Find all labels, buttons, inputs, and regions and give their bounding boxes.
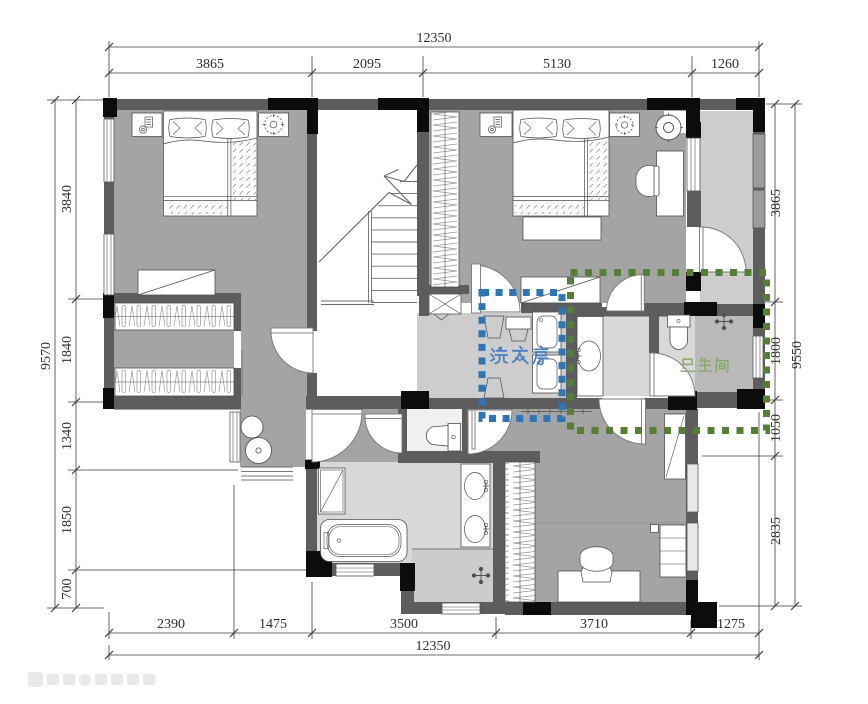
svg-text:1840: 1840 bbox=[60, 336, 75, 364]
svg-text:9550: 9550 bbox=[790, 341, 805, 369]
svg-text:2095: 2095 bbox=[353, 57, 381, 72]
svg-text:5130: 5130 bbox=[543, 57, 571, 72]
svg-text:2835: 2835 bbox=[769, 517, 784, 545]
svg-text:9570: 9570 bbox=[39, 342, 54, 370]
svg-text:1050: 1050 bbox=[769, 414, 784, 442]
svg-text:1275: 1275 bbox=[717, 617, 745, 632]
svg-text:1260: 1260 bbox=[711, 57, 739, 72]
svg-text:700: 700 bbox=[60, 579, 75, 600]
svg-text:1340: 1340 bbox=[60, 422, 75, 450]
svg-text:3865: 3865 bbox=[769, 189, 784, 217]
svg-text:1800: 1800 bbox=[769, 337, 784, 365]
svg-text:3710: 3710 bbox=[580, 617, 608, 632]
svg-text:3865: 3865 bbox=[196, 57, 224, 72]
svg-text:3500: 3500 bbox=[390, 617, 418, 632]
svg-text:3840: 3840 bbox=[60, 185, 75, 213]
svg-text:1475: 1475 bbox=[259, 617, 287, 632]
svg-text:12350: 12350 bbox=[416, 639, 451, 654]
svg-text:1850: 1850 bbox=[60, 506, 75, 534]
svg-text:12350: 12350 bbox=[417, 31, 452, 46]
svg-text:2390: 2390 bbox=[157, 617, 185, 632]
